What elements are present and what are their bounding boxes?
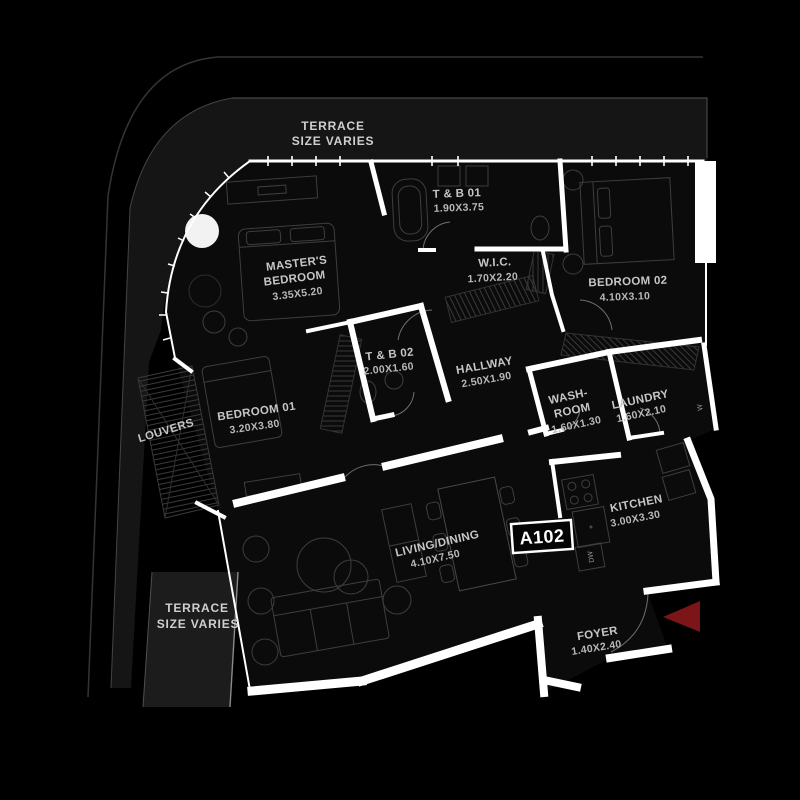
svg-text:TERRACE: TERRACE [301, 119, 365, 133]
entry-arrow [663, 601, 700, 632]
svg-text:T & B 01: T & B 01 [432, 187, 481, 201]
terrace-bottom-strip [143, 572, 238, 707]
unit-badge-label: A102 [519, 525, 565, 548]
label-terrace-top: TERRACE SIZE VARIES [292, 119, 375, 148]
unit-badge: A102 [511, 520, 573, 553]
label-tb02: T & B 02 2.00X1.60 [363, 347, 415, 378]
column [185, 214, 219, 248]
svg-text:W.I.C.: W.I.C. [478, 256, 512, 270]
svg-text:4.10X3.10: 4.10X3.10 [599, 290, 650, 304]
svg-text:1.90X3.75: 1.90X3.75 [433, 201, 484, 215]
floor-plan: DW W [0, 0, 800, 800]
svg-text:TERRACE: TERRACE [165, 601, 229, 615]
floor-plan-drawing: DW W [0, 0, 800, 800]
svg-text:SIZE VARIES: SIZE VARIES [157, 617, 240, 631]
label-master-bedroom: MASTER'S BEDROOM 3.35X5.20 [263, 254, 328, 303]
svg-text:SIZE VARIES: SIZE VARIES [292, 134, 375, 148]
